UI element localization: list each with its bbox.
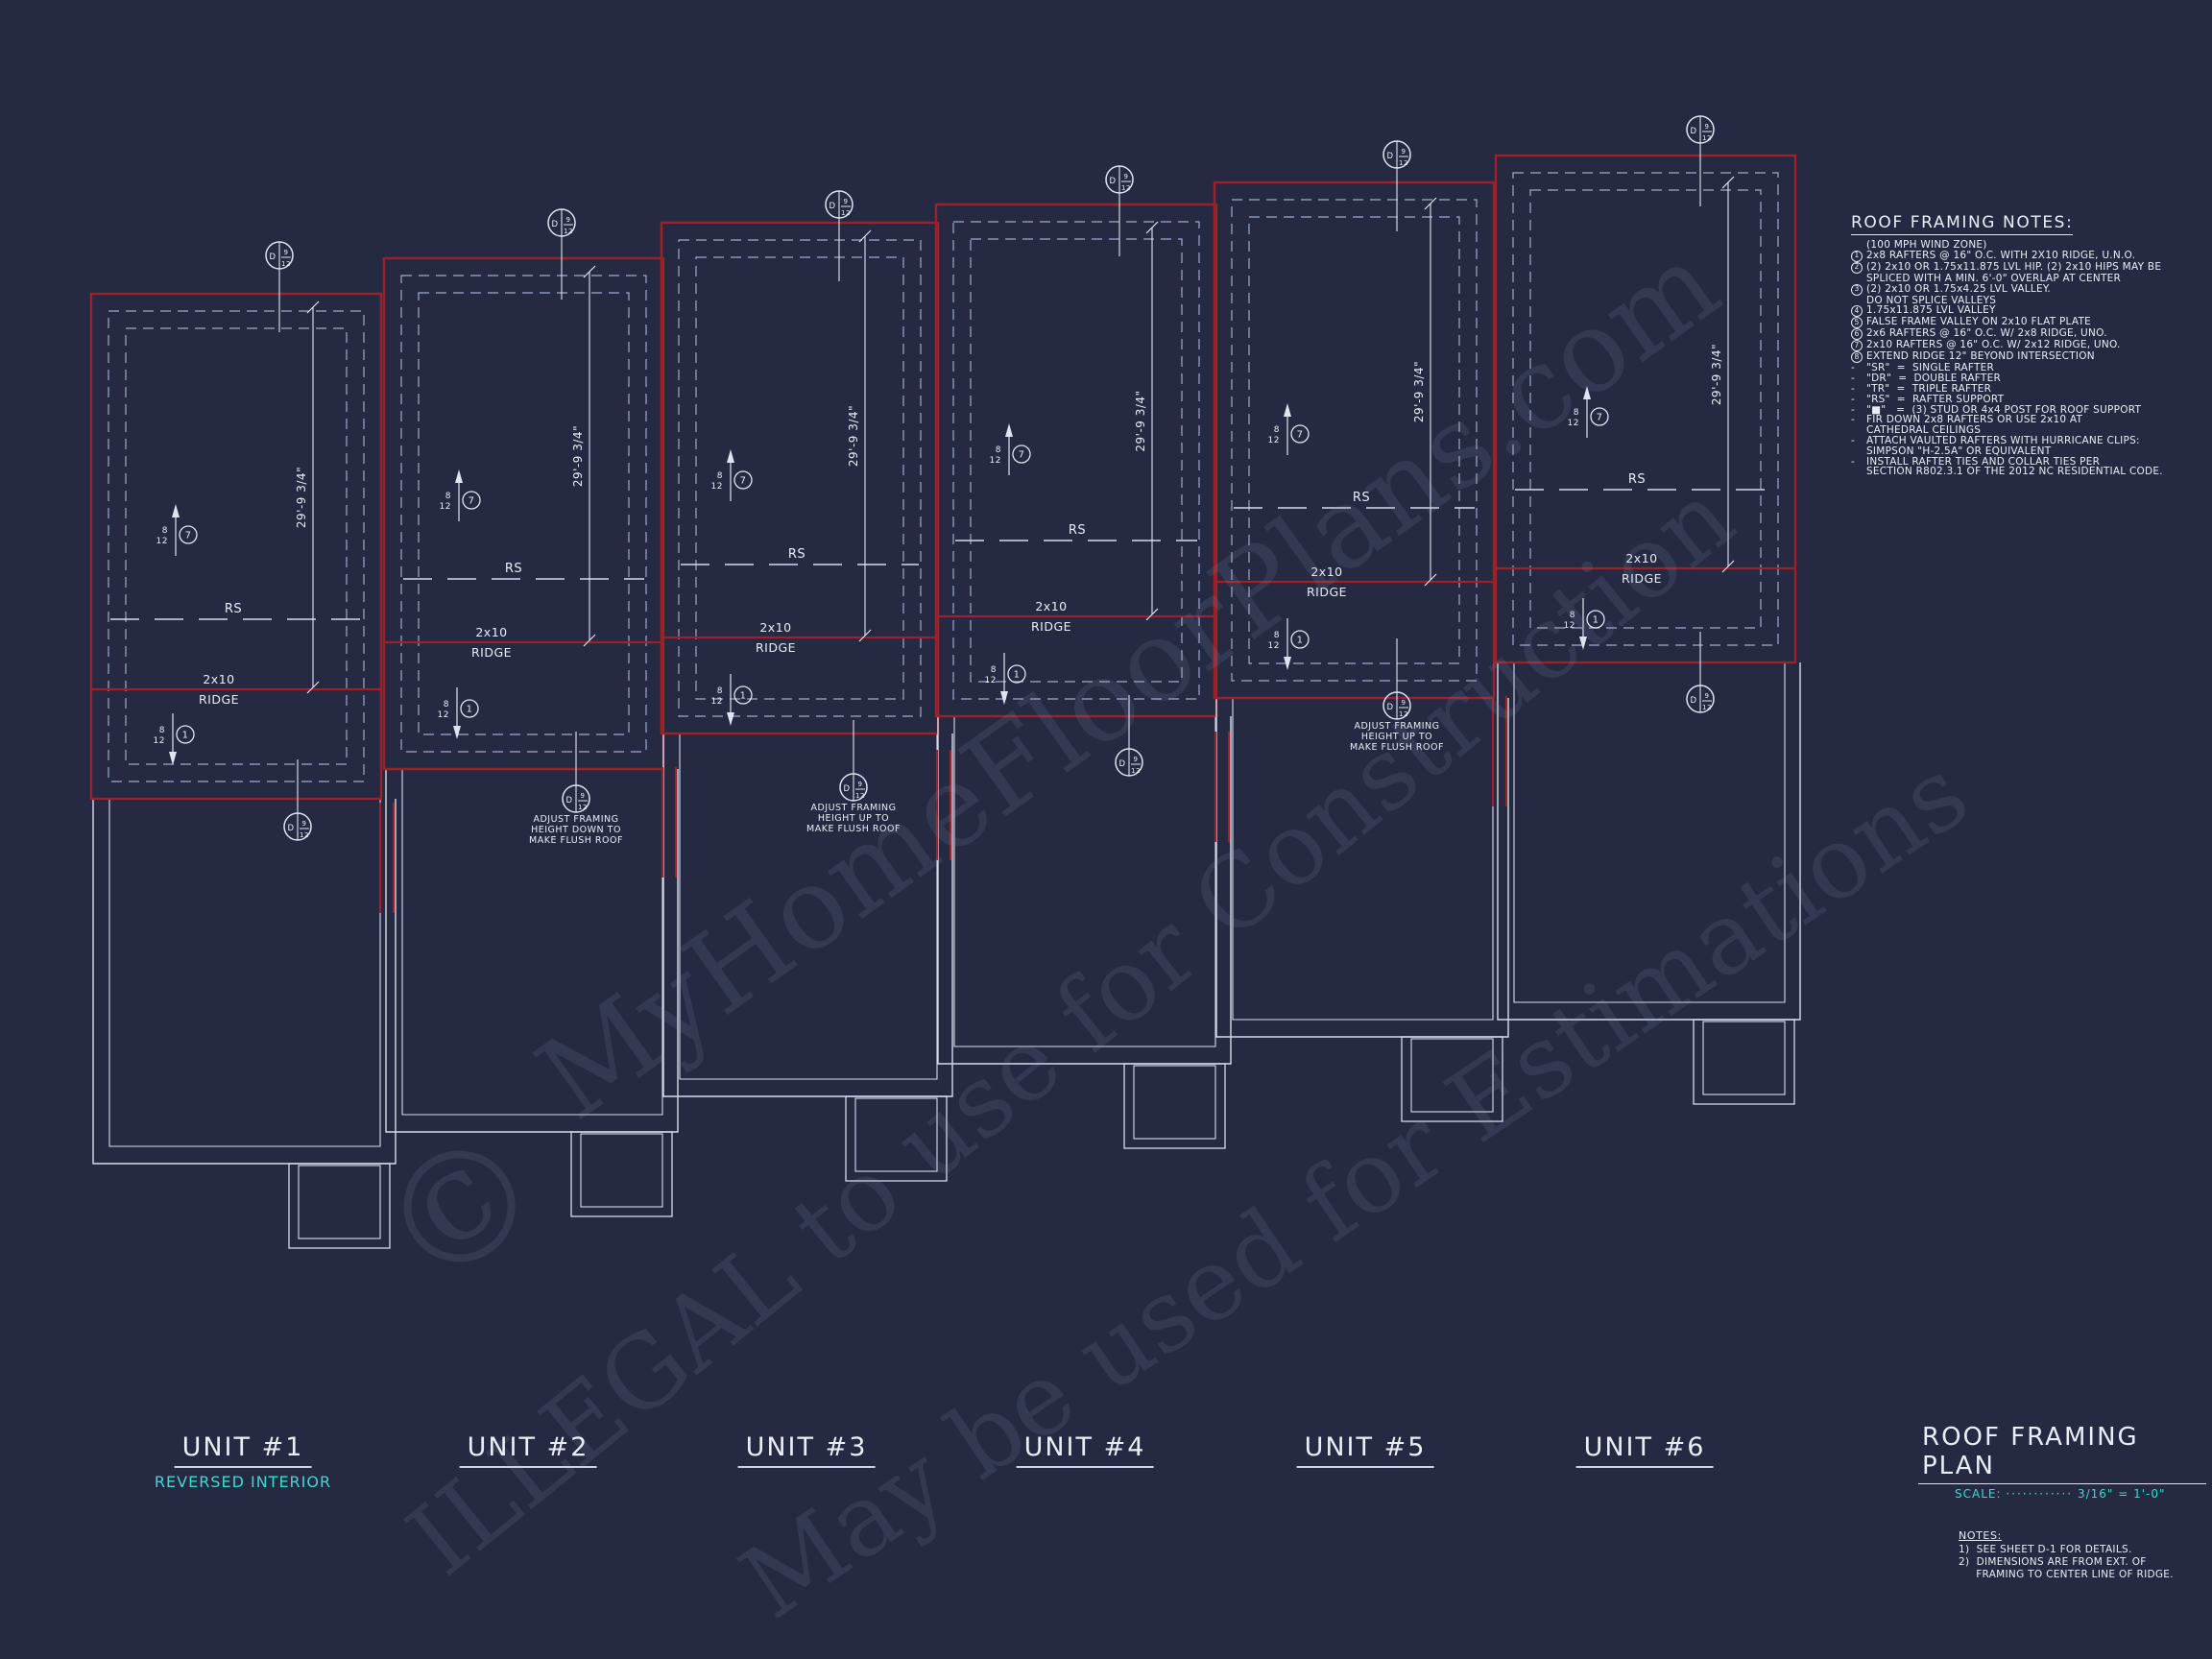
pitch-numerator: 8 — [444, 700, 449, 709]
sheet-note-line: FRAMING TO CENTER LINE OF RIDGE. — [1959, 1569, 2206, 1581]
callout-letter: D — [829, 202, 835, 211]
pitch-denominator: 12 — [154, 736, 165, 746]
callout-letter: D — [843, 784, 850, 794]
callout-number: 9 — [1705, 692, 1710, 700]
note-circled-number: 5 — [1851, 317, 1863, 328]
unit-6-rs-label: RS — [1628, 472, 1646, 487]
adjust-note-line: HEIGHT UP TO — [1361, 732, 1432, 742]
unit-3-top-callout: D912 — [826, 191, 853, 281]
pitch-note-number: 1 — [467, 705, 473, 715]
note-marker: 5 — [1851, 317, 1866, 328]
unit-5-adjust-note: ADJUST FRAMINGHEIGHT UP TOMAKE FLUSH ROO… — [1350, 721, 1444, 753]
adjust-note-line: ADJUST FRAMING — [810, 803, 896, 813]
pitch-numerator: 8 — [445, 492, 451, 501]
note-circled-number: 2 — [1851, 262, 1863, 274]
note-row: 3(2) 2x10 OR 1.75x4.25 LVL VALLEY. — [1851, 284, 2208, 296]
pitch-denominator: 12 — [1564, 621, 1575, 631]
pitch-arrowhead — [455, 469, 463, 483]
pitch-numerator: 8 — [1274, 425, 1280, 435]
unit-2-ridge-label: RIDGE — [471, 645, 512, 660]
unit-6-pitch-marker-up: 8127 — [1568, 386, 1608, 438]
unit-3-adjust-note: ADJUST FRAMINGHEIGHT UP TOMAKE FLUSH ROO… — [806, 803, 901, 834]
stoop-outline — [846, 1096, 947, 1181]
note-text: 2x6 RAFTERS @ 16" O.C. W/ 2x8 RIDGE, UNO… — [1866, 328, 2107, 339]
pitch-numerator: 8 — [1574, 408, 1579, 418]
pitch-numerator: 8 — [1570, 611, 1575, 620]
note-dash-marker: - — [1851, 457, 1866, 468]
unit-4-drawing: RS2x10RIDGE29'-9 3/4"81278121D912D912 — [936, 166, 1231, 1148]
callout-letter: D — [269, 252, 276, 262]
roof-framing-plan-sheet: RS2x10RIDGE29'-9 3/4"81278121D912D912RS2… — [0, 0, 2212, 1659]
adjust-note-line: HEIGHT DOWN TO — [531, 825, 621, 835]
callout-number: 12 — [564, 228, 573, 235]
dimension-text: 29'-9 3/4" — [1134, 390, 1147, 451]
unit-1-top-callout: D912 — [266, 242, 293, 332]
pitch-numerator: 8 — [1274, 631, 1280, 640]
pitch-denominator: 12 — [711, 482, 723, 492]
pitch-numerator: 8 — [991, 665, 997, 675]
stoop-outline — [1694, 1020, 1794, 1104]
pitch-arrowhead — [1579, 637, 1587, 650]
lower-roof-outline — [386, 769, 678, 1132]
unit-3-drawing: RS2x10RIDGE29'-9 3/4"81278121D912D912ADJ… — [661, 191, 952, 1181]
unit-6-dimension: 29'-9 3/4" — [1710, 177, 1734, 572]
roof-overhang-dashed — [419, 293, 629, 734]
note-text: "RS" = RAFTER SUPPORT — [1866, 395, 2004, 405]
stoop-outline — [1402, 1037, 1503, 1121]
callout-number: 9 — [581, 792, 586, 800]
unit-1-stoop — [289, 1164, 390, 1248]
unit-2-label: UNIT #2 — [460, 1432, 597, 1468]
note-text: 2x8 RAFTERS @ 16" O.C. WITH 2X10 RIDGE, … — [1866, 251, 2135, 261]
note-text: SECTION R802.3.1 OF THE 2012 NC RESIDENT… — [1866, 467, 2163, 477]
unit-4-rs-label: RS — [1069, 523, 1086, 538]
unit-2-roof-outline — [384, 258, 663, 769]
lower-roof-outline — [938, 716, 1231, 1064]
note-marker: 4 — [1851, 305, 1866, 317]
sheet-notes: NOTES: 1) SEE SHEET D-1 FOR DETAILS. 2) … — [1959, 1529, 2206, 1581]
unit-1-dimension: 29'-9 3/4" — [295, 301, 319, 693]
pitch-arrowhead — [169, 752, 177, 765]
unit-1-sublabel: REVERSED INTERIOR — [155, 1473, 331, 1491]
callout-letter: D — [1690, 696, 1696, 706]
stoop-inner-line — [1411, 1039, 1493, 1112]
scale-dots: ············ — [2006, 1487, 2073, 1501]
lower-roof-inner-line — [109, 799, 380, 1146]
unit-6-label: UNIT #6 — [1576, 1432, 1714, 1468]
adjust-note-line: MAKE FLUSH ROOF — [1350, 742, 1444, 753]
unit-1-label: UNIT #1 — [175, 1432, 312, 1468]
adjust-note-line: HEIGHT UP TO — [818, 813, 889, 824]
callout-number: 12 — [1131, 767, 1141, 775]
unit-4-pitch-marker-up: 8127 — [990, 423, 1030, 475]
unit-1-rs-label: RS — [225, 602, 242, 616]
pitch-arrowhead — [1284, 403, 1291, 417]
callout-letter: D — [1118, 759, 1125, 769]
callout-number: 9 — [302, 820, 307, 828]
note-dash-marker: - — [1851, 436, 1866, 446]
note-text: 1.75x11.875 LVL VALLEY — [1866, 305, 1996, 316]
callout-letter: D — [1690, 127, 1696, 136]
callout-number: 12 — [1399, 159, 1408, 167]
adjust-note-line: MAKE FLUSH ROOF — [806, 824, 901, 834]
callout-letter: D — [287, 824, 294, 833]
callout-letter: D — [1386, 703, 1393, 712]
callout-number: 9 — [858, 781, 863, 788]
unit-2-lower-roof — [386, 769, 678, 1132]
unit-6-roof-outline — [1496, 156, 1795, 662]
sheet-note-line: 1) SEE SHEET D-1 FOR DETAILS. — [1959, 1544, 2206, 1556]
note-row: 2(2) 2x10 OR 1.75x11.875 LVL HIP. (2) 2x… — [1851, 262, 2208, 274]
unit-6-pitch-marker-down: 8121 — [1564, 598, 1604, 650]
pitch-arrowhead — [1000, 691, 1008, 705]
callout-number: 9 — [1402, 699, 1407, 707]
pitch-note-number: 7 — [469, 496, 475, 507]
note-text: 2x10 RAFTERS @ 16" O.C. W/ 2x12 RIDGE, U… — [1866, 340, 2121, 350]
pitch-numerator: 8 — [717, 686, 723, 696]
unit-2-pitch-marker-up: 8127 — [440, 469, 480, 521]
unit-5-stoop — [1402, 1037, 1503, 1121]
callout-number: 12 — [281, 260, 291, 268]
unit-3-rs-label: RS — [788, 547, 805, 562]
plan-title: ROOF FRAMING PLAN — [1918, 1423, 2206, 1484]
notes-panel-rows: (100 MPH WIND ZONE)12x8 RAFTERS @ 16" O.… — [1851, 240, 2208, 477]
dimension-text: 29'-9 3/4" — [1412, 361, 1426, 422]
unit-4-pitch-marker-down: 8121 — [985, 653, 1025, 705]
pitch-arrowhead — [172, 504, 180, 517]
unit-3-lower-roof — [663, 733, 952, 1096]
unit-5-dimension: 29'-9 3/4" — [1412, 198, 1436, 586]
pitch-denominator: 12 — [440, 502, 451, 512]
callout-letter: D — [1109, 177, 1116, 186]
unit-2-ridge-label: 2x10 — [475, 625, 507, 639]
unit-3-pitch-marker-up: 8127 — [711, 449, 752, 501]
unit-5-rs-label: RS — [1353, 491, 1370, 505]
notes-panel-title: ROOF FRAMING NOTES: — [1851, 213, 2073, 235]
unit-1-ridge-label: RIDGE — [199, 692, 239, 707]
unit-6-ridge-label: 2x10 — [1625, 551, 1657, 565]
lower-roof-outline — [93, 799, 396, 1164]
note-circled-number: 6 — [1851, 328, 1863, 340]
lower-roof-outline — [1498, 662, 1800, 1020]
unit-5-roof-outline — [1214, 182, 1494, 698]
unit-4-dimension: 29'-9 3/4" — [1134, 222, 1158, 620]
unit-2-top-callout: D912 — [548, 209, 575, 300]
sheet-note-line: 2) DIMENSIONS ARE FROM EXT. OF — [1959, 1556, 2206, 1569]
dimension-text: 29'-9 3/4" — [1710, 344, 1723, 405]
dimension-text: 29'-9 3/4" — [571, 425, 585, 487]
callout-number: 12 — [841, 209, 851, 217]
unit-2-stoop — [571, 1132, 672, 1216]
unit-4-roof-outline — [936, 204, 1216, 716]
note-text: SIMPSON "H-2.5A" OR EQUIVALENT — [1866, 446, 2051, 457]
unit-3-pitch-marker-down: 8121 — [711, 674, 752, 726]
callout-letter: D — [565, 796, 572, 805]
pitch-arrowhead — [727, 449, 734, 463]
unit-3-ridge-label: 2x10 — [759, 620, 791, 635]
unit-4-bottom-callout: D912 — [1116, 695, 1142, 776]
stoop-outline — [289, 1164, 390, 1248]
unit-5-bottom-callout: D912 — [1383, 638, 1410, 719]
pitch-denominator: 12 — [156, 537, 168, 546]
roof-overhang-dashed — [971, 239, 1182, 682]
lower-roof-outline — [663, 733, 952, 1096]
callout-number: 12 — [855, 792, 865, 800]
callout-number: 9 — [1134, 756, 1139, 763]
unit-3-dimension: 29'-9 3/4" — [847, 230, 871, 641]
pitch-note-number: 1 — [1297, 636, 1304, 646]
unit-6-bottom-callout: D912 — [1687, 632, 1714, 712]
callout-number: 12 — [1702, 704, 1712, 711]
unit-2-dimension: 29'-9 3/4" — [571, 266, 595, 646]
roof-overhang-dashed — [401, 276, 646, 752]
pitch-note-number: 7 — [740, 476, 747, 487]
note-text: (2) 2x10 OR 1.75x11.875 LVL HIP. (2) 2x1… — [1866, 262, 2161, 273]
unit-2-pitch-marker-down: 8121 — [438, 687, 478, 739]
unit-5-drawing: RS2x10RIDGE29'-9 3/4"81278121D912D912ADJ… — [1214, 141, 1508, 1121]
plan-scale: SCALE: ············ 3/16" = 1'-0" — [1955, 1487, 2206, 1501]
roof-overhang-dashed — [679, 240, 921, 716]
callout-number: 9 — [1124, 173, 1129, 180]
pitch-note-number: 1 — [740, 691, 747, 702]
stoop-inner-line — [581, 1134, 662, 1207]
note-circled-number: 3 — [1851, 284, 1863, 296]
unit-4-top-callout: D912 — [1106, 166, 1133, 256]
pitch-note-number: 1 — [1593, 615, 1599, 626]
note-text: EXTEND RIDGE 12" BEYOND INTERSECTION — [1866, 351, 2095, 362]
pitch-denominator: 12 — [1268, 436, 1280, 445]
note-row: 12x8 RAFTERS @ 16" O.C. WITH 2X10 RIDGE,… — [1851, 251, 2208, 262]
pitch-note-number: 1 — [182, 731, 189, 741]
note-text: FALSE FRAME VALLEY ON 2x10 FLAT PLATE — [1866, 317, 2091, 327]
lower-roof-inner-line — [680, 733, 937, 1079]
pitch-note-number: 7 — [1297, 430, 1304, 441]
dimension-text: 29'-9 3/4" — [847, 405, 860, 467]
pitch-arrowhead — [1005, 423, 1013, 437]
unit-6-top-callout: D912 — [1687, 116, 1714, 206]
note-marker: 7 — [1851, 340, 1866, 351]
unit-5-pitch-marker-up: 8127 — [1268, 403, 1309, 455]
pitch-denominator: 12 — [985, 676, 997, 685]
unit-5-top-callout: D912 — [1383, 141, 1410, 231]
note-text: SPLICED WITH A MIN. 6'-0" OVERLAP AT CEN… — [1866, 274, 2121, 284]
unit-2-rs-label: RS — [505, 562, 522, 576]
callout-number: 9 — [1402, 148, 1407, 156]
pitch-denominator: 12 — [1568, 419, 1579, 428]
note-marker: 2 — [1851, 262, 1866, 274]
note-dash-marker: - — [1851, 395, 1866, 405]
unit-2-bottom-callout: D912 — [563, 732, 589, 812]
lower-roof-inner-line — [1514, 662, 1785, 1002]
stoop-inner-line — [1703, 1022, 1785, 1094]
pitch-denominator: 12 — [1268, 641, 1280, 651]
callout-number: 12 — [1121, 184, 1131, 192]
unit-6-drawing: RS2x10RIDGE29'-9 3/4"81278121D912D912 — [1493, 116, 1800, 1104]
lower-roof-inner-line — [954, 716, 1215, 1046]
adjust-note-line: ADJUST FRAMING — [533, 814, 618, 825]
pitch-note-number: 7 — [185, 531, 192, 541]
scale-value: 3/16" = 1'-0" — [2078, 1487, 2166, 1501]
stoop-outline — [1124, 1064, 1225, 1148]
roof-framing-notes-panel: ROOF FRAMING NOTES: (100 MPH WIND ZONE)1… — [1851, 213, 2208, 477]
unit-4-label: UNIT #4 — [1017, 1432, 1154, 1468]
note-row: -"RS" = RAFTER SUPPORT — [1851, 395, 2208, 405]
note-marker: 3 — [1851, 284, 1866, 296]
roof-overhang-dashed — [1249, 217, 1459, 663]
unit-5-ridge-label: RIDGE — [1307, 585, 1347, 599]
pitch-denominator: 12 — [711, 697, 723, 707]
unit-1-ridge-label: 2x10 — [203, 672, 234, 686]
unit-5-pitch-marker-down: 8121 — [1268, 618, 1309, 670]
callout-number: 12 — [300, 831, 309, 839]
stoop-inner-line — [299, 1166, 380, 1238]
dimension-text: 29'-9 3/4" — [295, 467, 308, 528]
pitch-note-number: 7 — [1019, 450, 1025, 461]
pitch-numerator: 8 — [717, 471, 723, 481]
unit-6-ridge-label: RIDGE — [1622, 571, 1662, 586]
unit-1-roof-outline — [91, 294, 381, 799]
pitch-note-number: 7 — [1597, 413, 1603, 423]
note-circled-number: 1 — [1851, 251, 1863, 262]
note-circled-number: 7 — [1851, 340, 1863, 351]
note-row: SIMPSON "H-2.5A" OR EQUIVALENT — [1851, 446, 2208, 457]
unit-4-ridge-label: RIDGE — [1031, 619, 1071, 634]
unit-3-label: UNIT #3 — [738, 1432, 876, 1468]
adjust-note-line: ADJUST FRAMING — [1354, 721, 1439, 732]
title-block: ROOF FRAMING PLAN SCALE: ············ 3/… — [1918, 1423, 2206, 1581]
unit-1-pitch-marker-up: 8127 — [156, 504, 197, 556]
callout-letter: D — [1386, 152, 1393, 161]
roof-overhang-dashed — [696, 257, 903, 699]
stoop-inner-line — [1134, 1066, 1215, 1139]
note-dash-marker: - — [1851, 415, 1866, 425]
callout-number: 12 — [578, 804, 588, 811]
unit-4-ridge-label: 2x10 — [1035, 599, 1067, 613]
unit-2-adjust-note: ADJUST FRAMINGHEIGHT DOWN TOMAKE FLUSH R… — [529, 814, 623, 846]
pitch-numerator: 8 — [162, 526, 168, 536]
unit-1-drawing: RS2x10RIDGE29'-9 3/4"81278121D912D912 — [91, 242, 396, 1248]
adjust-note-line: MAKE FLUSH ROOF — [529, 835, 623, 846]
pitch-numerator: 8 — [996, 445, 1001, 455]
pitch-arrowhead — [453, 726, 461, 739]
note-row: SECTION R802.3.1 OF THE 2012 NC RESIDENT… — [1851, 467, 2208, 477]
pitch-numerator: 8 — [159, 726, 165, 735]
pitch-denominator: 12 — [990, 456, 1001, 466]
unit-3-ridge-label: RIDGE — [756, 640, 796, 655]
unit-1-pitch-marker-down: 8121 — [154, 713, 194, 765]
callout-number: 12 — [1399, 710, 1408, 718]
unit-4-lower-roof — [938, 716, 1231, 1064]
callout-number: 9 — [566, 216, 571, 224]
unit-3-stoop — [846, 1096, 947, 1181]
callout-number: 9 — [284, 249, 289, 256]
unit-5-label: UNIT #5 — [1297, 1432, 1434, 1468]
unit-4-stoop — [1124, 1064, 1225, 1148]
note-circled-number: 4 — [1851, 305, 1863, 317]
unit-2-drawing: RS2x10RIDGE29'-9 3/4"81278121D912D912ADJ… — [380, 209, 678, 1216]
scale-label: SCALE: — [1955, 1487, 2002, 1501]
sheet-notes-title: NOTES: — [1959, 1529, 2206, 1542]
note-text: (2) 2x10 OR 1.75x4.25 LVL VALLEY. — [1866, 284, 2051, 295]
unit-6-lower-roof — [1498, 662, 1800, 1020]
note-marker: 6 — [1851, 328, 1866, 340]
pitch-arrowhead — [727, 712, 734, 726]
roof-overhang-dashed — [108, 311, 364, 781]
unit-6-stoop — [1694, 1020, 1794, 1104]
stoop-outline — [571, 1132, 672, 1216]
note-marker: 1 — [1851, 251, 1866, 262]
pitch-denominator: 12 — [438, 710, 449, 720]
unit-1-lower-roof — [93, 799, 396, 1164]
note-row: SPLICED WITH A MIN. 6'-0" OVERLAP AT CEN… — [1851, 274, 2208, 284]
pitch-note-number: 1 — [1014, 670, 1021, 681]
callout-letter: D — [551, 220, 558, 229]
unit-5-ridge-label: 2x10 — [1310, 565, 1342, 579]
callout-number: 12 — [1702, 134, 1712, 142]
stoop-inner-line — [855, 1098, 937, 1171]
unit-3-roof-outline — [661, 223, 938, 733]
pitch-arrowhead — [1583, 386, 1591, 399]
callout-number: 9 — [1705, 123, 1710, 131]
unit-3-bottom-callout: D912 — [840, 720, 867, 801]
callout-number: 9 — [844, 198, 849, 205]
